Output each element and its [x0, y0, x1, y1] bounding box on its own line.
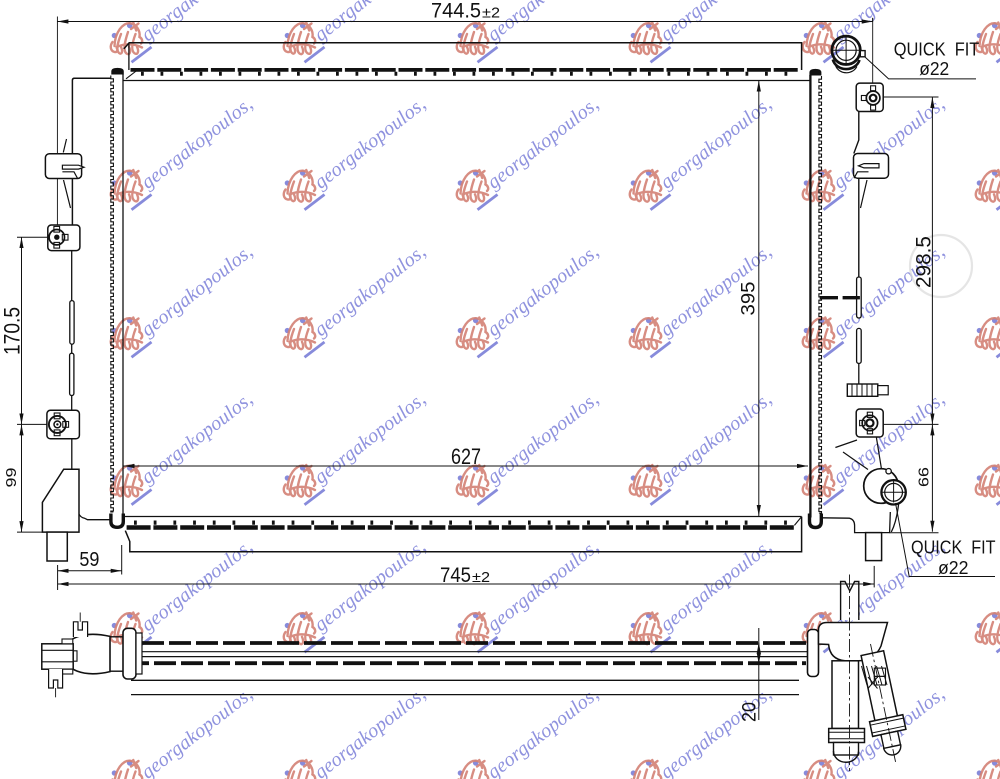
svg-text:QUICK FIT: QUICK FIT	[911, 537, 996, 557]
svg-text:99: 99	[915, 467, 932, 487]
svg-text:298.5: 298.5	[913, 236, 936, 288]
svg-text:745: 745	[440, 564, 471, 587]
svg-text:ø22: ø22	[919, 59, 949, 79]
svg-text:ø22: ø22	[938, 558, 969, 578]
svg-text:395: 395	[739, 282, 760, 316]
svg-text:±2: ±2	[472, 569, 490, 586]
svg-text:59: 59	[79, 549, 99, 571]
svg-text:170.5: 170.5	[0, 307, 25, 355]
svg-text:99: 99	[3, 468, 20, 488]
svg-text:627: 627	[451, 444, 481, 469]
svg-text:±2: ±2	[482, 5, 500, 22]
svg-text:20: 20	[740, 702, 761, 722]
svg-text:744.5: 744.5	[431, 0, 481, 23]
svg-text:QUICK FIT: QUICK FIT	[894, 39, 980, 59]
